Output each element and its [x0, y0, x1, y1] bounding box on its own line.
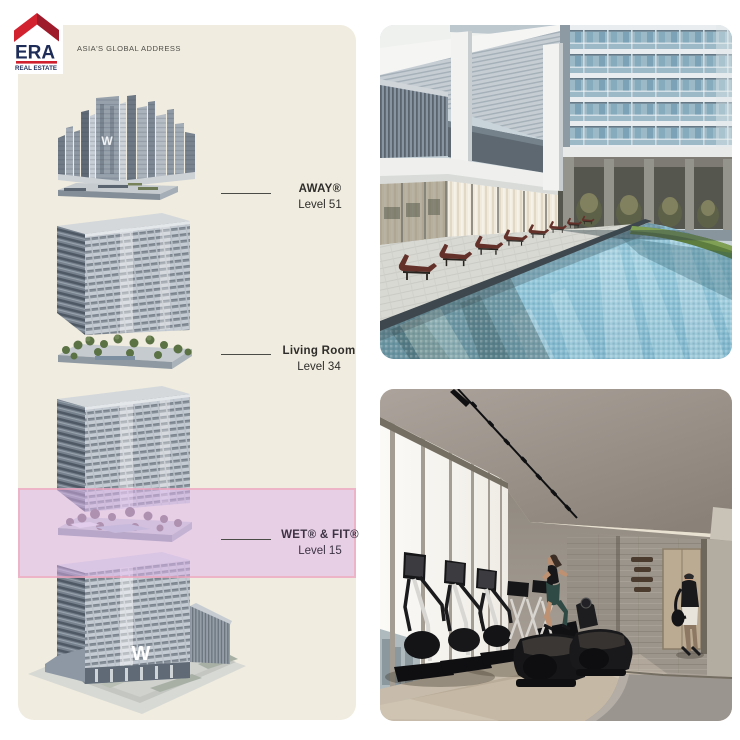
svg-text:ERA: ERA — [15, 42, 55, 64]
svg-text:W: W — [132, 643, 151, 665]
svg-text:REAL ESTATE: REAL ESTATE — [15, 65, 57, 72]
svg-text:W: W — [101, 134, 113, 148]
